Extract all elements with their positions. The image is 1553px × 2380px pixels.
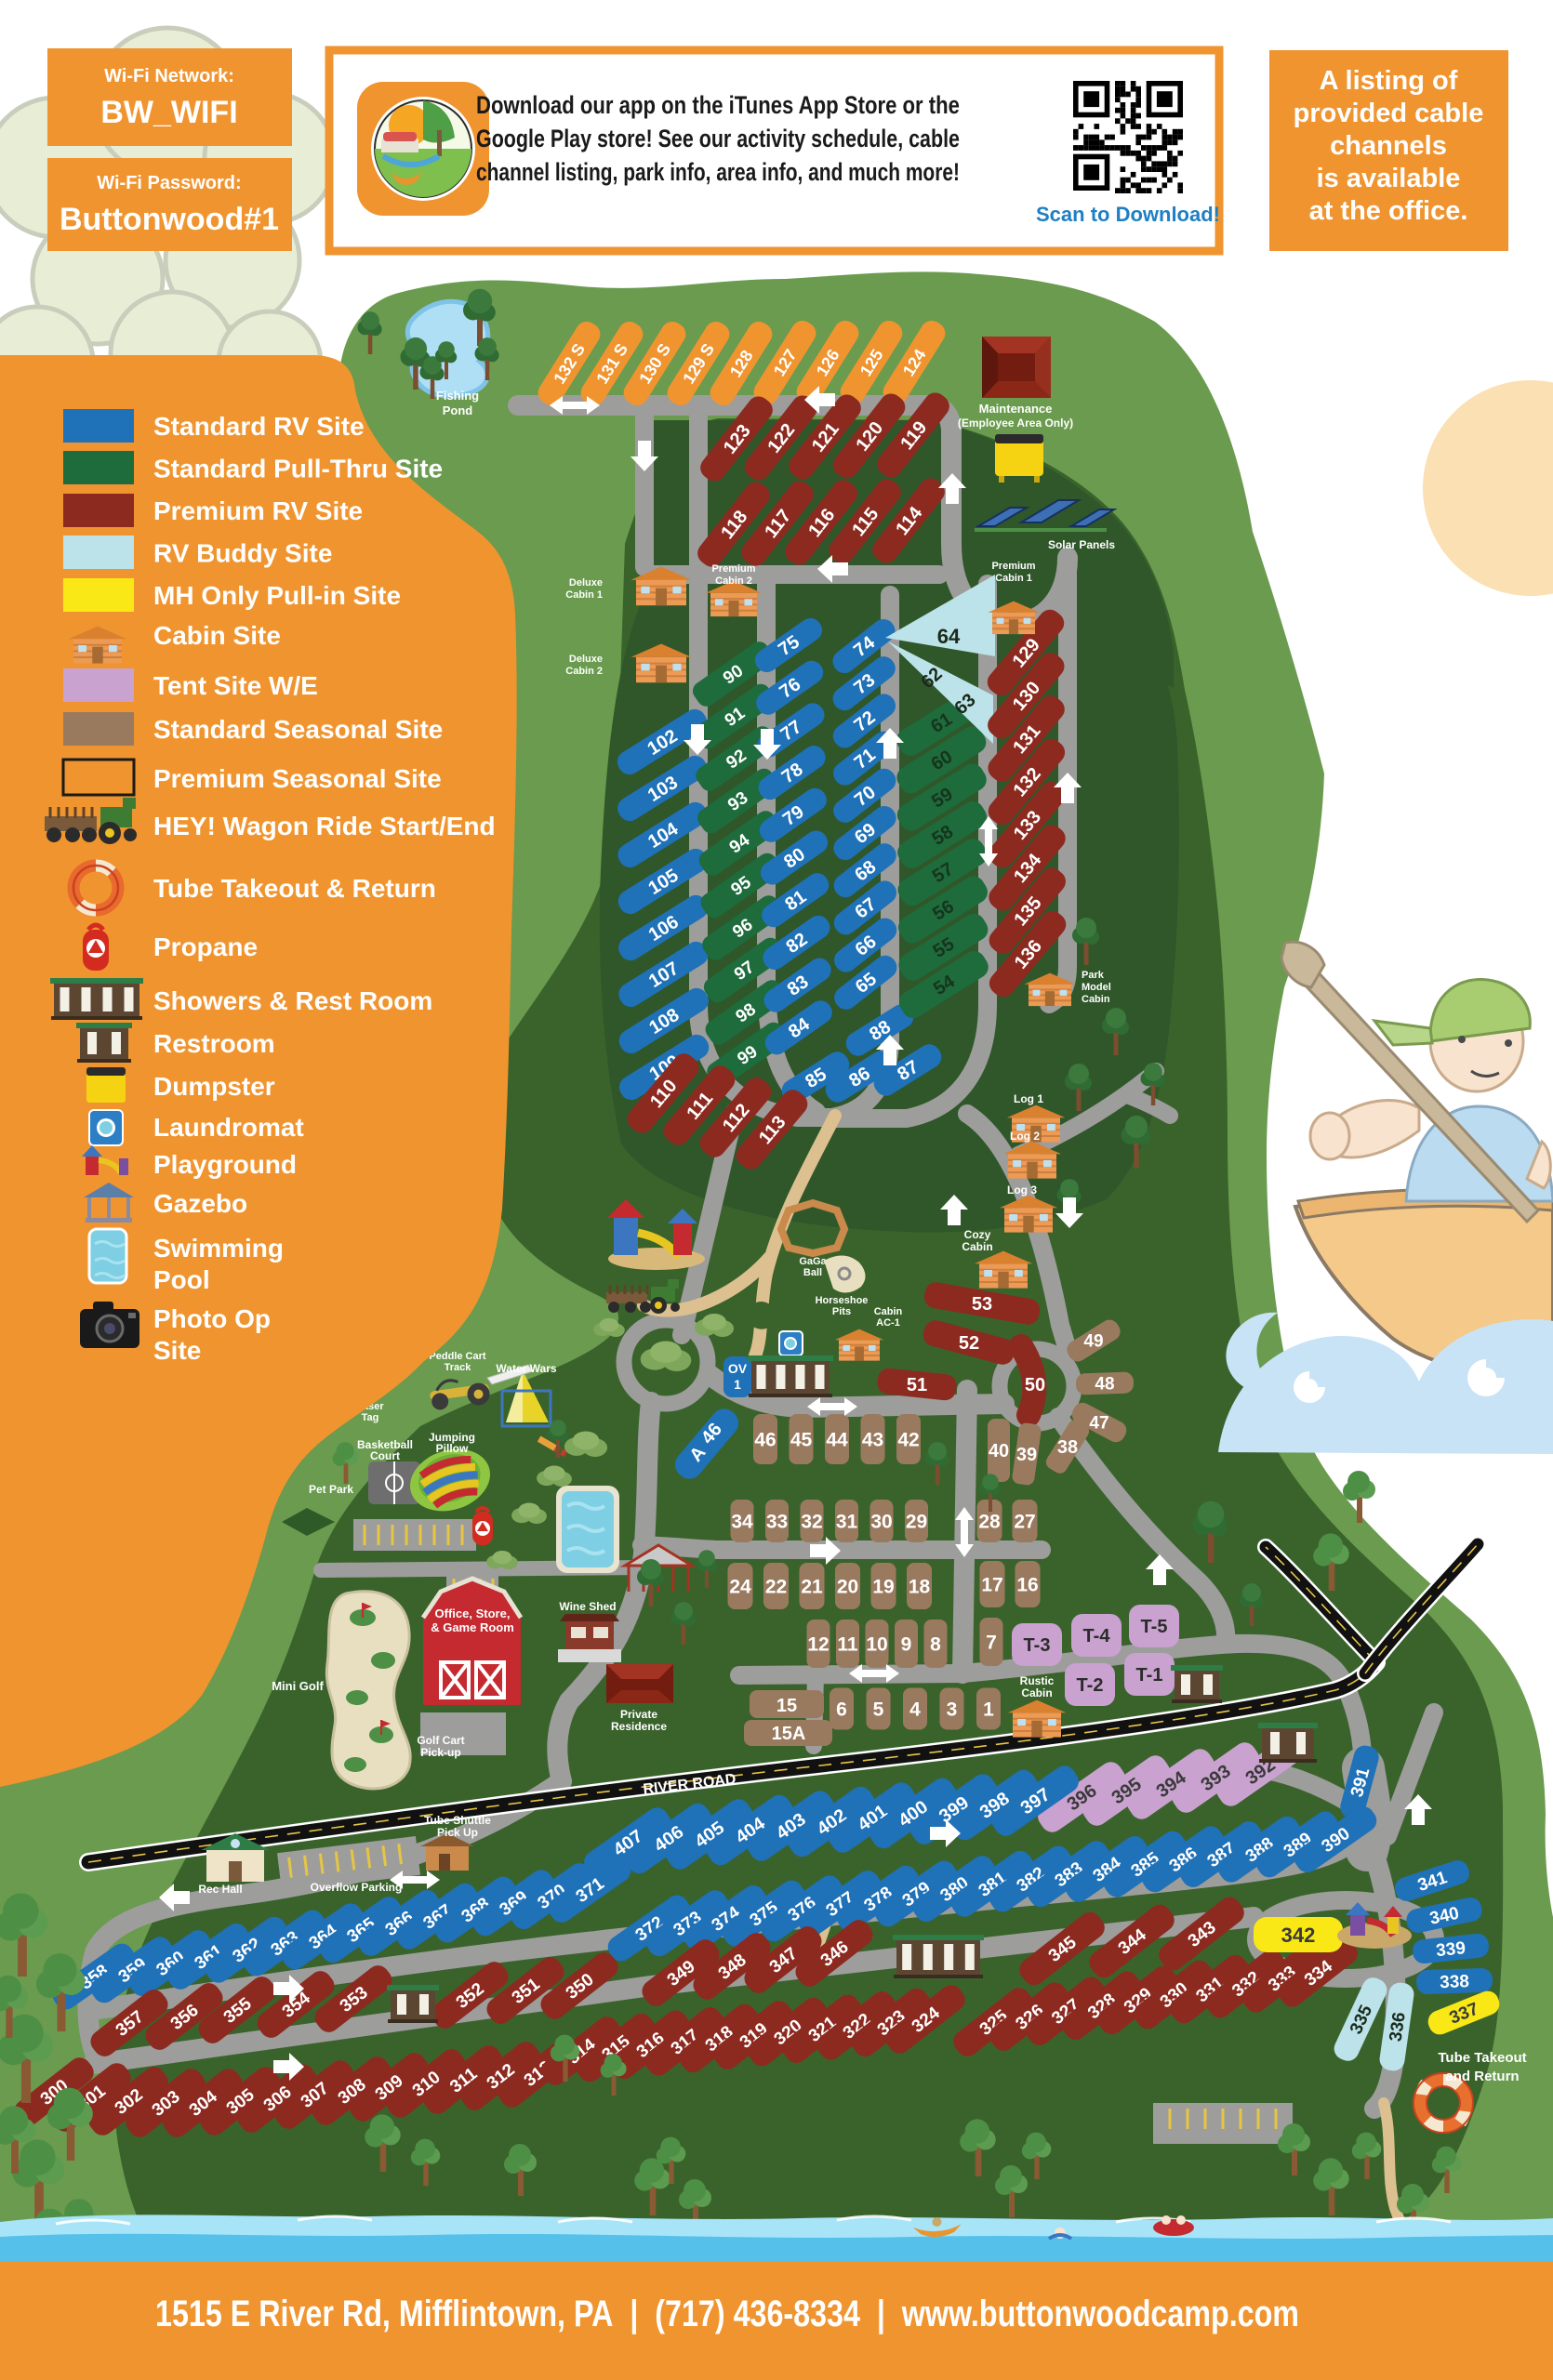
svg-text:GaGa: GaGa xyxy=(799,1256,827,1267)
svg-text:52: 52 xyxy=(959,1333,979,1354)
svg-text:336: 336 xyxy=(1387,2011,1410,2043)
svg-text:T-4: T-4 xyxy=(1083,1626,1111,1646)
svg-text:Court: Court xyxy=(370,1449,400,1462)
svg-text:15A: 15A xyxy=(772,1724,806,1744)
svg-text:Pet Park: Pet Park xyxy=(309,1483,353,1496)
svg-text:Fishing: Fishing xyxy=(436,389,479,403)
svg-text:17: 17 xyxy=(981,1574,1002,1595)
svg-text:Private: Private xyxy=(620,1708,657,1721)
svg-text:Pillow: Pillow xyxy=(436,1442,469,1455)
svg-text:32: 32 xyxy=(801,1511,822,1532)
svg-text:Propane: Propane xyxy=(153,932,258,961)
svg-text:Cabin 2: Cabin 2 xyxy=(715,575,752,587)
svg-text:51: 51 xyxy=(907,1375,927,1395)
svg-text:38: 38 xyxy=(1057,1437,1078,1458)
svg-text:Tag: Tag xyxy=(362,1412,379,1423)
svg-text:& Game Room: & Game Room xyxy=(431,1620,514,1634)
svg-text:Residence: Residence xyxy=(611,1720,667,1733)
svg-text:Standard Seasonal Site: Standard Seasonal Site xyxy=(153,715,443,744)
svg-text:T-5: T-5 xyxy=(1141,1617,1168,1637)
svg-text:Solar Panels: Solar Panels xyxy=(1048,538,1115,551)
svg-text:3: 3 xyxy=(947,1699,958,1720)
svg-text:Track: Track xyxy=(445,1362,472,1373)
svg-text:Gazebo: Gazebo xyxy=(153,1189,247,1218)
svg-text:Cabin 1: Cabin 1 xyxy=(565,589,603,601)
svg-text:8: 8 xyxy=(930,1633,941,1655)
svg-text:33: 33 xyxy=(766,1511,788,1532)
svg-text:Peddle Cart: Peddle Cart xyxy=(429,1351,485,1362)
svg-text:channels: channels xyxy=(1330,131,1447,161)
svg-text:16: 16 xyxy=(1016,1574,1038,1595)
svg-text:Pick-up: Pick-up xyxy=(420,1746,460,1759)
svg-text:OV: OV xyxy=(728,1361,748,1376)
svg-text:Ball: Ball xyxy=(803,1267,822,1278)
svg-text:Restroom: Restroom xyxy=(153,1029,275,1058)
svg-text:Cabin: Cabin xyxy=(1082,994,1110,1005)
svg-text:40: 40 xyxy=(989,1441,1009,1461)
svg-text:45: 45 xyxy=(790,1429,813,1450)
svg-text:10: 10 xyxy=(866,1633,887,1655)
svg-text:Pool: Pool xyxy=(153,1265,210,1294)
svg-text:Dumpster: Dumpster xyxy=(153,1072,275,1101)
svg-text:Laundromat: Laundromat xyxy=(153,1113,304,1142)
svg-text:Google Play store! See our act: Google Play store! See our activity sche… xyxy=(476,125,960,152)
svg-text:Deluxe: Deluxe xyxy=(569,577,603,588)
svg-text:Golf Cart: Golf Cart xyxy=(417,1734,464,1747)
svg-text:RV Buddy Site: RV Buddy Site xyxy=(153,539,332,568)
svg-text:Download our app on the iTunes: Download our app on the iTunes App Store… xyxy=(476,91,960,119)
svg-text:Wine Shed: Wine Shed xyxy=(559,1600,616,1613)
svg-text:1: 1 xyxy=(983,1699,994,1720)
svg-text:Playground: Playground xyxy=(153,1150,297,1179)
svg-text:44: 44 xyxy=(826,1429,848,1450)
svg-text:A listing of: A listing of xyxy=(1320,66,1458,96)
svg-text:MH Only Pull-in Site: MH Only Pull-in Site xyxy=(153,581,401,610)
svg-text:Rustic: Rustic xyxy=(1020,1674,1055,1687)
svg-text:339: 339 xyxy=(1435,1938,1467,1961)
svg-text:20: 20 xyxy=(837,1576,858,1597)
svg-text:Cabin: Cabin xyxy=(1021,1686,1052,1699)
svg-text:and Return: and Return xyxy=(1445,2069,1519,2084)
svg-text:HEY! Wagon Ride Start/End: HEY! Wagon Ride Start/End xyxy=(153,812,496,840)
svg-text:Scan to Download!: Scan to Download! xyxy=(1036,203,1220,226)
svg-text:BW_WIFI: BW_WIFI xyxy=(100,95,237,130)
svg-text:Cabin Site: Cabin Site xyxy=(153,621,281,650)
svg-text:Office, Store,: Office, Store, xyxy=(435,1606,511,1620)
svg-text:T-3: T-3 xyxy=(1024,1635,1051,1656)
svg-text:53: 53 xyxy=(972,1294,992,1315)
svg-text:15: 15 xyxy=(776,1696,797,1716)
svg-text:Model: Model xyxy=(1082,982,1111,993)
svg-text:7: 7 xyxy=(986,1632,997,1653)
svg-text:T-2: T-2 xyxy=(1077,1675,1104,1696)
svg-text:46: 46 xyxy=(754,1429,776,1450)
svg-text:19: 19 xyxy=(872,1576,894,1597)
svg-text:Tent Site W/E: Tent Site W/E xyxy=(153,671,318,700)
svg-text:T-1: T-1 xyxy=(1136,1665,1163,1686)
svg-text:Buttonwood#1: Buttonwood#1 xyxy=(60,202,279,237)
svg-text:338: 338 xyxy=(1440,1972,1469,1992)
svg-text:Tube Shuttle: Tube Shuttle xyxy=(424,1814,491,1827)
svg-text:Cabin 2: Cabin 2 xyxy=(565,666,603,677)
svg-text:Photo Op: Photo Op xyxy=(153,1304,271,1333)
svg-text:9: 9 xyxy=(901,1633,912,1655)
svg-text:is available: is available xyxy=(1317,164,1461,193)
svg-text:Premium: Premium xyxy=(991,561,1035,572)
svg-text:Tube Takeout: Tube Takeout xyxy=(1438,2050,1526,2066)
svg-text:34: 34 xyxy=(731,1511,753,1532)
svg-text:Pond: Pond xyxy=(443,403,473,417)
svg-text:Showers & Rest Room: Showers & Rest Room xyxy=(153,986,432,1015)
svg-text:Premium: Premium xyxy=(711,563,755,575)
svg-text:11: 11 xyxy=(837,1633,858,1655)
svg-text:Site: Site xyxy=(153,1336,201,1365)
svg-text:Cabin: Cabin xyxy=(962,1240,992,1253)
svg-text:(Employee Area Only): (Employee Area Only) xyxy=(958,416,1073,430)
svg-text:Cabin 1: Cabin 1 xyxy=(995,573,1032,584)
svg-text:42: 42 xyxy=(897,1429,919,1450)
svg-text:Maintenance: Maintenance xyxy=(979,402,1053,416)
svg-text:channel listing, park info, ar: channel listing, park info, area info, a… xyxy=(476,158,960,186)
svg-text:27: 27 xyxy=(1014,1511,1035,1532)
svg-text:28: 28 xyxy=(978,1511,1001,1532)
svg-text:21: 21 xyxy=(801,1576,823,1597)
svg-text:24: 24 xyxy=(729,1576,751,1597)
svg-text:Cozy: Cozy xyxy=(964,1228,991,1241)
svg-text:50: 50 xyxy=(1025,1375,1045,1395)
svg-text:Log 1: Log 1 xyxy=(1014,1092,1043,1105)
svg-text:Premium Seasonal Site: Premium Seasonal Site xyxy=(153,764,442,793)
svg-text:47: 47 xyxy=(1089,1414,1108,1434)
svg-text:6: 6 xyxy=(836,1699,847,1720)
svg-text:Wi-Fi Network:: Wi-Fi Network: xyxy=(104,66,234,86)
svg-text:Pits: Pits xyxy=(832,1306,851,1317)
svg-text:64: 64 xyxy=(937,625,961,648)
svg-text:AC-1: AC-1 xyxy=(876,1317,900,1329)
svg-text:48: 48 xyxy=(1095,1375,1114,1395)
svg-text:5: 5 xyxy=(873,1699,884,1720)
svg-text:Wi-Fi Password:: Wi-Fi Password: xyxy=(97,173,241,193)
svg-text:30: 30 xyxy=(870,1511,892,1532)
svg-text:Standard Pull-Thru Site: Standard Pull-Thru Site xyxy=(153,455,443,483)
svg-text:39: 39 xyxy=(1016,1445,1037,1465)
svg-text:Park: Park xyxy=(1082,970,1105,981)
svg-text:18: 18 xyxy=(909,1576,931,1597)
svg-text:43: 43 xyxy=(862,1429,883,1450)
svg-text:Premium RV Site: Premium RV Site xyxy=(153,496,363,525)
svg-text:Deluxe: Deluxe xyxy=(569,654,603,665)
svg-text:Pick Up: Pick Up xyxy=(437,1826,478,1839)
svg-text:1515 E River Rd, Mifflintown,: 1515 E River Rd, Mifflintown, PA | (717)… xyxy=(155,2294,1299,2334)
svg-text:31: 31 xyxy=(836,1511,858,1532)
svg-text:1: 1 xyxy=(734,1377,741,1392)
svg-text:12: 12 xyxy=(807,1633,829,1655)
svg-text:Tube Takeout & Return: Tube Takeout & Return xyxy=(153,874,436,903)
svg-text:4: 4 xyxy=(909,1699,921,1720)
svg-text:Log 3: Log 3 xyxy=(1007,1183,1037,1197)
svg-text:49: 49 xyxy=(1083,1332,1103,1352)
svg-text:342: 342 xyxy=(1281,1924,1316,1947)
svg-text:22: 22 xyxy=(765,1576,787,1597)
svg-text:Horseshoe: Horseshoe xyxy=(816,1295,869,1306)
svg-text:29: 29 xyxy=(906,1511,927,1532)
svg-text:Log 2: Log 2 xyxy=(1010,1130,1040,1143)
svg-text:Swimming: Swimming xyxy=(153,1234,284,1263)
svg-text:Mini Golf: Mini Golf xyxy=(272,1679,324,1693)
svg-text:Standard RV Site: Standard RV Site xyxy=(153,412,365,441)
svg-text:Overflow Parking: Overflow Parking xyxy=(311,1881,403,1894)
svg-text:Cabin: Cabin xyxy=(874,1306,903,1317)
svg-text:provided cable: provided cable xyxy=(1294,99,1484,128)
svg-text:Rec Hall: Rec Hall xyxy=(198,1883,242,1896)
svg-text:at the office.: at the office. xyxy=(1309,196,1468,226)
svg-text:Water Wars: Water Wars xyxy=(496,1362,556,1375)
